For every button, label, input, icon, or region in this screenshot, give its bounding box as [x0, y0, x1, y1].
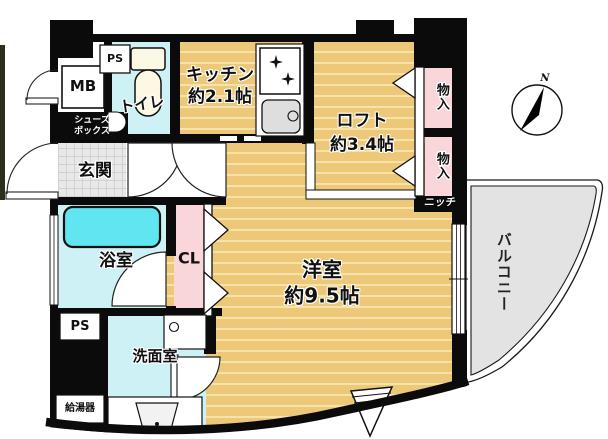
washroom-label: 洗面室 — [132, 349, 177, 365]
structure-overlay — [0, 0, 608, 439]
compass-north-label: N — [540, 74, 549, 85]
compass-icon — [512, 85, 562, 135]
washer-space — [164, 315, 206, 349]
closet-label: CL — [178, 251, 200, 268]
kitchen-counter — [256, 44, 304, 136]
shoe-box-label-line2: ボックス — [74, 127, 110, 136]
water-heater-label: 給湯器 — [65, 404, 95, 415]
western-room-label: 洋室 — [302, 260, 342, 281]
entrance-door-arc — [7, 143, 58, 194]
washroom-door-swing — [177, 357, 220, 400]
stove-icon — [260, 48, 300, 94]
storage-upper-label: 物入 — [434, 83, 448, 111]
shoe-box-label-line1: シューズ — [74, 116, 110, 125]
pipe-space-bottom-label: PS — [71, 320, 90, 334]
niche-label: ニッチ — [423, 197, 456, 208]
loft-label: ロフト — [337, 113, 388, 131]
bathroom-label: 浴室 — [99, 253, 133, 271]
kitchen-label: キッチン — [186, 67, 254, 85]
kitchen-size-label: 約2.1帖 — [188, 89, 252, 107]
bathroom-window — [50, 215, 58, 305]
bathtub — [64, 207, 160, 247]
floorplan: キッチン 約2.1帖 ロフト 約3.4帖 洋室 約9.5帖 トイレ 玄関 浴室 … — [0, 0, 608, 439]
meter-box-label: MB — [70, 79, 96, 95]
storage-folding-doors — [393, 67, 424, 196]
balcony-shape — [466, 180, 603, 382]
entrance-label: 玄関 — [78, 163, 112, 181]
closet-folding-doors — [204, 204, 228, 316]
pipe-space-top-label: PS — [107, 53, 123, 65]
balcony-window — [449, 224, 468, 334]
balcony-label: バルコニー — [495, 232, 511, 312]
loft-size-label: 約3.4帖 — [330, 137, 394, 155]
storage-lower-label: 物入 — [434, 152, 448, 180]
western-room-size-label: 約9.5帖 — [284, 286, 359, 307]
meterbox-door-arc — [27, 70, 57, 100]
room-door-swing — [172, 143, 226, 197]
